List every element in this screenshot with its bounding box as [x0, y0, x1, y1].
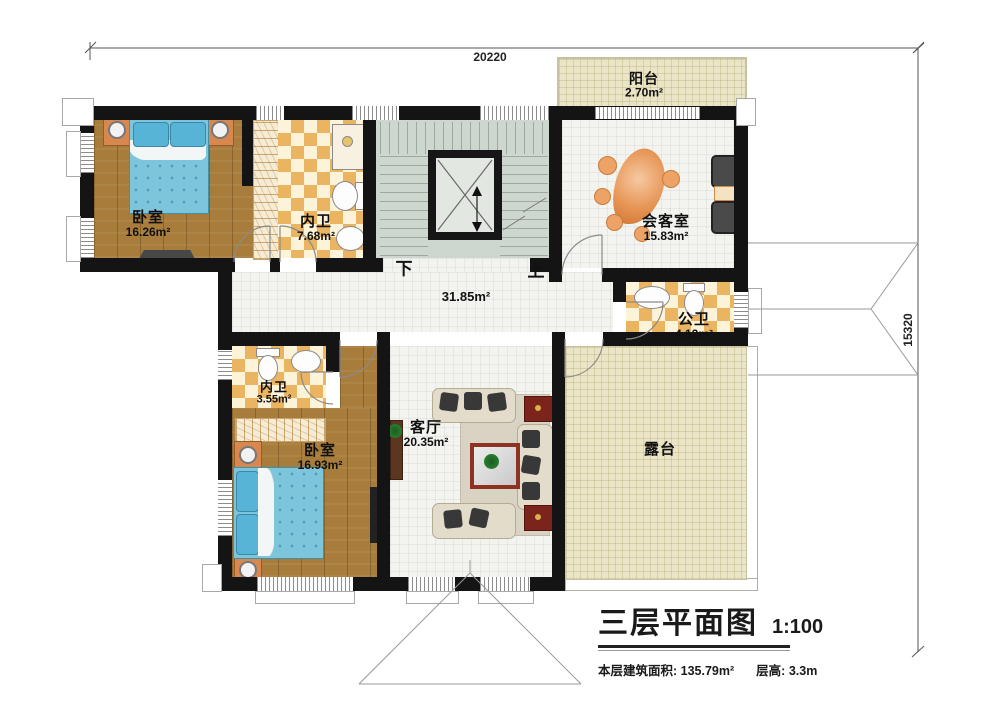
bedroom-sw-entry-floor [340, 346, 377, 408]
stair-treads-left [380, 154, 428, 256]
wall [549, 106, 562, 282]
window [480, 577, 530, 591]
sill [62, 98, 94, 126]
sink [291, 350, 321, 373]
wall [552, 346, 565, 577]
window [218, 480, 232, 536]
window [218, 350, 232, 380]
lamp [211, 121, 229, 139]
dimension-height: 15320 [901, 313, 915, 346]
floor-height-stat: 层高: 3.3m [756, 660, 817, 679]
sink [336, 226, 365, 251]
sill [66, 216, 81, 262]
dimension-width: 20220 [473, 50, 506, 64]
pillow [236, 514, 259, 555]
room-label-bedroom-sw: 卧室 16.93m² [298, 443, 343, 471]
wardrobe-nw [253, 120, 280, 260]
balcony-slider-window [595, 107, 700, 119]
room-label-living: 客厅 20.35m² [404, 420, 449, 448]
room-label-public-bath: 公卫 4.12m² [675, 312, 713, 340]
wall [377, 346, 390, 577]
decor-dot [594, 188, 611, 205]
sill [748, 288, 762, 334]
wall [326, 346, 340, 372]
sill [66, 131, 81, 177]
stair-up-label: 上 [528, 257, 545, 282]
sofa-cushion [464, 392, 482, 410]
sofa-cushion [439, 392, 459, 412]
sill [202, 564, 222, 592]
roof-right [748, 243, 918, 375]
wall [377, 332, 390, 346]
wall [242, 120, 253, 186]
reception-side-table [714, 186, 736, 201]
sofa-cushion [522, 430, 540, 448]
title-block: 三层平面图 1:100 本层建筑面积: 135.79m² 层高: 3.3m [598, 598, 928, 679]
wall [316, 258, 383, 272]
wall [363, 120, 376, 258]
plan-title: 三层平面图 [598, 598, 758, 642]
title-underline-thick [598, 645, 790, 648]
sofa-cushion [468, 507, 489, 528]
room-label-bedroom-nw: 卧室 16.26m² [126, 210, 171, 238]
pillow [133, 122, 169, 147]
decor-dot [598, 156, 617, 175]
stair-treads-right [500, 154, 548, 256]
hall-area-label: 31.85m² [442, 290, 490, 304]
pillow [170, 122, 206, 147]
wall [613, 282, 626, 302]
decor-dot [662, 170, 680, 188]
floor-area-stat: 本层建筑面积: 135.79m² [598, 660, 734, 679]
cabinet-knob [535, 514, 541, 520]
wardrobe-sw [235, 418, 326, 442]
sofa-cushion [521, 455, 542, 476]
sofa-cushion [522, 482, 540, 500]
room-label-terrace: 露台 [644, 442, 676, 458]
window [256, 106, 284, 120]
toilet-bowl [258, 355, 278, 381]
drain [342, 136, 353, 147]
lamp [108, 121, 126, 139]
plant [388, 424, 402, 438]
sill [736, 98, 756, 126]
bed-mattress [130, 160, 206, 211]
floor-plan: 卧室 16.26m² 内卫 7.68m² 阳台 2.70m² 会客室 15.83… [0, 0, 1000, 706]
room-label-bath-sw: 内卫 3.55m² [257, 380, 292, 405]
window [734, 292, 748, 328]
window [80, 218, 94, 258]
plan-scale: 1:100 [772, 616, 823, 639]
sofa-cushion [487, 392, 507, 412]
bed-mattress [274, 468, 321, 556]
window [80, 133, 94, 173]
room-label-bath-nw: 内卫 7.68m² [297, 214, 335, 242]
room-label-balcony: 阳台 2.70m² [625, 71, 663, 98]
title-underline-thin [598, 650, 790, 651]
sill [478, 591, 534, 604]
decor-dot [606, 214, 623, 231]
lamp [239, 446, 257, 464]
terrace-floor [565, 346, 747, 580]
sink [634, 286, 670, 309]
wall [552, 332, 565, 346]
sill [406, 591, 459, 604]
wall [218, 272, 232, 590]
sofa-cushion [443, 509, 463, 529]
room-label-reception: 会客室 15.83m² [642, 214, 690, 242]
toilet-bowl [332, 181, 358, 211]
window [480, 106, 552, 120]
stair-down-label: 下 [396, 255, 413, 280]
wall [80, 258, 235, 272]
elevator [428, 150, 502, 240]
wall [270, 258, 280, 272]
pillow [236, 471, 259, 512]
window [257, 577, 353, 591]
cabinet-knob [535, 405, 541, 411]
shower-tray [332, 124, 364, 170]
tv-bedroom-sw [370, 487, 377, 543]
window [352, 106, 399, 120]
sill [255, 591, 355, 604]
table-plant [484, 454, 499, 469]
wall [218, 332, 340, 346]
wall [602, 268, 748, 282]
window [408, 577, 455, 591]
